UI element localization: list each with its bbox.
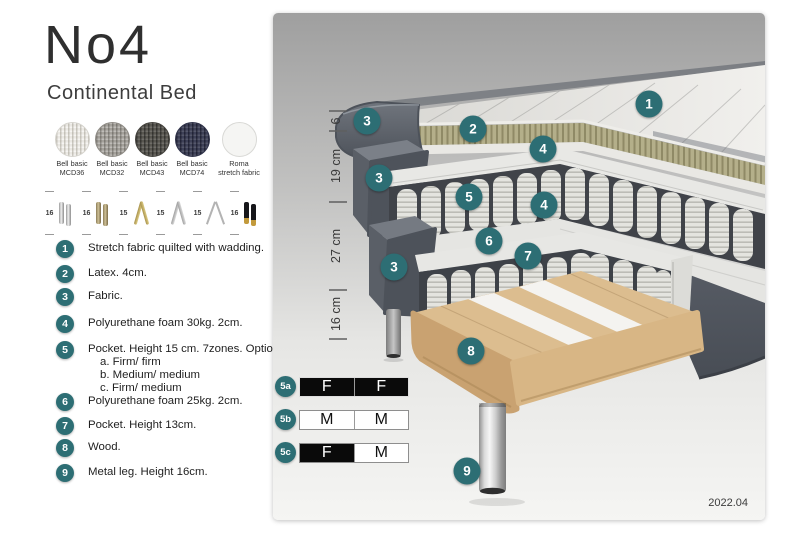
number-badge: 4 bbox=[56, 315, 74, 333]
fabric-swatch-label: Romastretch fabric bbox=[215, 160, 263, 177]
callout-badge: 8 bbox=[458, 338, 485, 365]
firmness-bar: F M bbox=[299, 443, 409, 463]
callout-badge: 3 bbox=[354, 108, 381, 135]
chrome-leg-icon bbox=[57, 201, 79, 227]
list-item-text: Stretch fabric quilted with wadding. bbox=[88, 242, 293, 255]
hairpin-leg-icon bbox=[205, 201, 227, 227]
firmness-bar: F F bbox=[299, 377, 409, 397]
list-item: 9 Metal leg. Height 16cm. bbox=[56, 464, 293, 482]
number-badge: 5 bbox=[56, 341, 74, 359]
dimension-label: 27 cm bbox=[329, 229, 343, 263]
dimension-label: 19 cm bbox=[329, 149, 343, 183]
callout-badge: 4 bbox=[530, 136, 557, 163]
fabric-swatch-image bbox=[135, 122, 170, 157]
fabric-swatch: Bell basicMCD74 bbox=[168, 122, 216, 177]
silver-twisted-leg-icon bbox=[168, 201, 190, 227]
list-item: 7 Pocket. Height 13cm. bbox=[56, 417, 293, 435]
list-item-text: Pocket. Height 15 cm. 7zones. Option: a.… bbox=[88, 343, 293, 395]
firmness-option-5b: 5b M M bbox=[275, 409, 409, 430]
gold-twisted-leg-icon bbox=[131, 201, 153, 227]
list-item: 5 Pocket. Height 15 cm. 7zones. Option: … bbox=[56, 341, 293, 395]
callout-badge: 5 bbox=[456, 184, 483, 211]
firmness-badge: 5c bbox=[275, 442, 296, 463]
product-subtitle: Continental Bed bbox=[47, 82, 197, 105]
firmness-option-5a: 5a F F bbox=[275, 376, 409, 397]
list-item: 4 Polyurethane foam 30kg. 2cm. bbox=[56, 315, 293, 333]
dimension-label: 6 bbox=[329, 118, 343, 125]
callout-badge: 7 bbox=[515, 243, 542, 270]
leg-option: 16 bbox=[44, 189, 80, 237]
callout-badge: 3 bbox=[366, 165, 393, 192]
list-item: 3 Fabric. bbox=[56, 288, 293, 306]
list-item-text: Latex. 4cm. bbox=[88, 267, 293, 280]
list-item-text: Wood. bbox=[88, 441, 293, 454]
firmness-badge: 5a bbox=[275, 376, 296, 397]
leg-option: 16 bbox=[81, 189, 117, 237]
callout-badge: 9 bbox=[454, 458, 481, 485]
number-badge: 9 bbox=[56, 464, 74, 482]
firmness-badge: 5b bbox=[275, 409, 296, 430]
number-badge: 2 bbox=[56, 265, 74, 283]
callout-badge: 1 bbox=[636, 91, 663, 118]
fabric-swatch-image bbox=[222, 122, 257, 157]
leg-option: 15 bbox=[192, 189, 228, 237]
number-badge: 6 bbox=[56, 393, 74, 411]
fabric-swatch-image bbox=[95, 122, 130, 157]
leg-option: 15 bbox=[155, 189, 191, 237]
callout-badge: 4 bbox=[531, 192, 558, 219]
callout-badge: 2 bbox=[460, 116, 487, 143]
leg-option: 15 bbox=[118, 189, 154, 237]
list-item: 1 Stretch fabric quilted with wadding. bbox=[56, 240, 293, 258]
black-gold-leg-icon bbox=[242, 201, 264, 227]
list-item: 6 Polyurethane foam 25kg. 2cm. bbox=[56, 393, 293, 411]
list-item-text: Fabric. bbox=[88, 290, 293, 303]
number-badge: 8 bbox=[56, 439, 74, 457]
fabric-swatch-label: Bell basicMCD74 bbox=[168, 160, 216, 177]
list-item-text: Metal leg. Height 16cm. bbox=[88, 466, 293, 479]
dimension-label: 16 cm bbox=[329, 297, 343, 331]
number-badge: 7 bbox=[56, 417, 74, 435]
brass-leg-icon bbox=[94, 201, 116, 227]
leg-option: 16 bbox=[229, 189, 265, 237]
callout-badge: 6 bbox=[476, 228, 503, 255]
number-badge: 1 bbox=[56, 240, 74, 258]
fabric-swatch-image bbox=[55, 122, 90, 157]
list-item: 8 Wood. bbox=[56, 439, 293, 457]
fabric-swatch: Romastretch fabric bbox=[215, 122, 263, 177]
version-date: 2022.04 bbox=[708, 497, 748, 509]
product-title: No4 bbox=[44, 14, 152, 76]
fabric-swatch-image bbox=[175, 122, 210, 157]
list-item-text: Pocket. Height 13cm. bbox=[88, 419, 293, 432]
callout-badge: 3 bbox=[381, 254, 408, 281]
list-item-text: Polyurethane foam 30kg. 2cm. bbox=[88, 317, 293, 330]
infographic-page: No4 Continental Bed Bell basicMCD36 Bell… bbox=[0, 0, 800, 533]
bed-cutaway-illustration: 1 2 3 4 3 5 4 6 7 3 8 9 6 19 cm 27 cm 16… bbox=[273, 13, 765, 520]
list-item: 2 Latex. 4cm. bbox=[56, 265, 293, 283]
firmness-bar: M M bbox=[299, 410, 409, 430]
firmness-option-5c: 5c F M bbox=[275, 442, 409, 463]
list-item-text: Polyurethane foam 25kg. 2cm. bbox=[88, 395, 293, 408]
number-badge: 3 bbox=[56, 288, 74, 306]
